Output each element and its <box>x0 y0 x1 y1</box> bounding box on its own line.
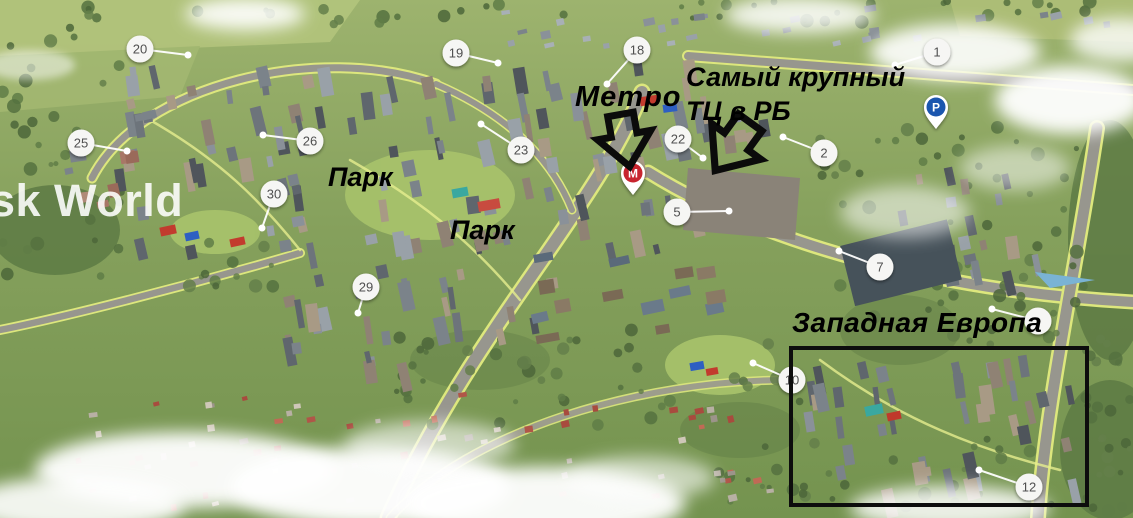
svg-text:23: 23 <box>514 143 528 158</box>
svg-text:5: 5 <box>673 205 680 220</box>
marker-anchor-dot <box>604 81 611 88</box>
marker-anchor-dot <box>780 134 787 141</box>
svg-text:26: 26 <box>303 134 317 149</box>
marker-anchor-dot <box>260 132 267 139</box>
marker-anchor-dot <box>478 121 485 128</box>
map-marker-1[interactable]: 1 <box>924 39 951 66</box>
marker-anchor-dot <box>836 248 843 255</box>
map-marker-5[interactable]: 5 <box>664 199 691 226</box>
marker-anchor-dot <box>355 310 362 317</box>
map-marker-30[interactable]: 30 <box>261 181 288 208</box>
map-marker-hidden[interactable] <box>1025 308 1052 335</box>
svg-text:12: 12 <box>1022 480 1036 495</box>
marker-anchor-dot <box>185 52 192 59</box>
svg-text:20: 20 <box>133 42 147 57</box>
masterplan-map: 20191812526232223057291012 МP sk World М… <box>0 0 1133 518</box>
map-marker-20[interactable]: 20 <box>127 36 154 63</box>
svg-text:7: 7 <box>876 260 883 275</box>
marker-anchor-dot <box>989 306 996 313</box>
map-marker-22[interactable]: 22 <box>665 126 692 153</box>
marker-anchor-dot <box>726 208 733 215</box>
map-annotation-overlay: 20191812526232223057291012 МP <box>0 0 1133 518</box>
svg-text:25: 25 <box>74 136 88 151</box>
svg-text:10: 10 <box>785 373 799 388</box>
map-marker-23[interactable]: 23 <box>508 137 535 164</box>
svg-text:1: 1 <box>933 45 940 60</box>
svg-text:2: 2 <box>820 146 827 161</box>
svg-text:19: 19 <box>449 46 463 61</box>
map-marker-25[interactable]: 25 <box>68 130 95 157</box>
marker-anchor-dot <box>259 225 266 232</box>
marker-anchor-dot <box>976 467 983 474</box>
map-marker-29[interactable]: 29 <box>353 274 380 301</box>
map-marker-26[interactable]: 26 <box>297 128 324 155</box>
map-marker-19[interactable]: 19 <box>443 40 470 67</box>
marker-anchor-dot <box>124 148 131 155</box>
map-marker-18[interactable]: 18 <box>624 37 651 64</box>
map-marker-2[interactable]: 2 <box>811 140 838 167</box>
metro-arrow-icon <box>594 110 656 172</box>
svg-text:29: 29 <box>359 280 373 295</box>
marker-anchor-dot <box>700 155 707 162</box>
map-marker-7[interactable]: 7 <box>867 254 894 281</box>
map-marker-10[interactable]: 10 <box>779 367 806 394</box>
parking-pin-icon: P <box>924 95 948 129</box>
svg-text:P: P <box>932 100 940 114</box>
svg-text:18: 18 <box>630 43 644 58</box>
svg-text:30: 30 <box>267 187 281 202</box>
svg-text:22: 22 <box>671 132 685 147</box>
mall-arrow-icon <box>691 105 775 189</box>
marker-anchor-dot <box>495 60 502 67</box>
marker-anchor-dot <box>892 62 899 69</box>
map-marker-12[interactable]: 12 <box>1016 474 1043 501</box>
marker-anchor-dot <box>750 360 757 367</box>
